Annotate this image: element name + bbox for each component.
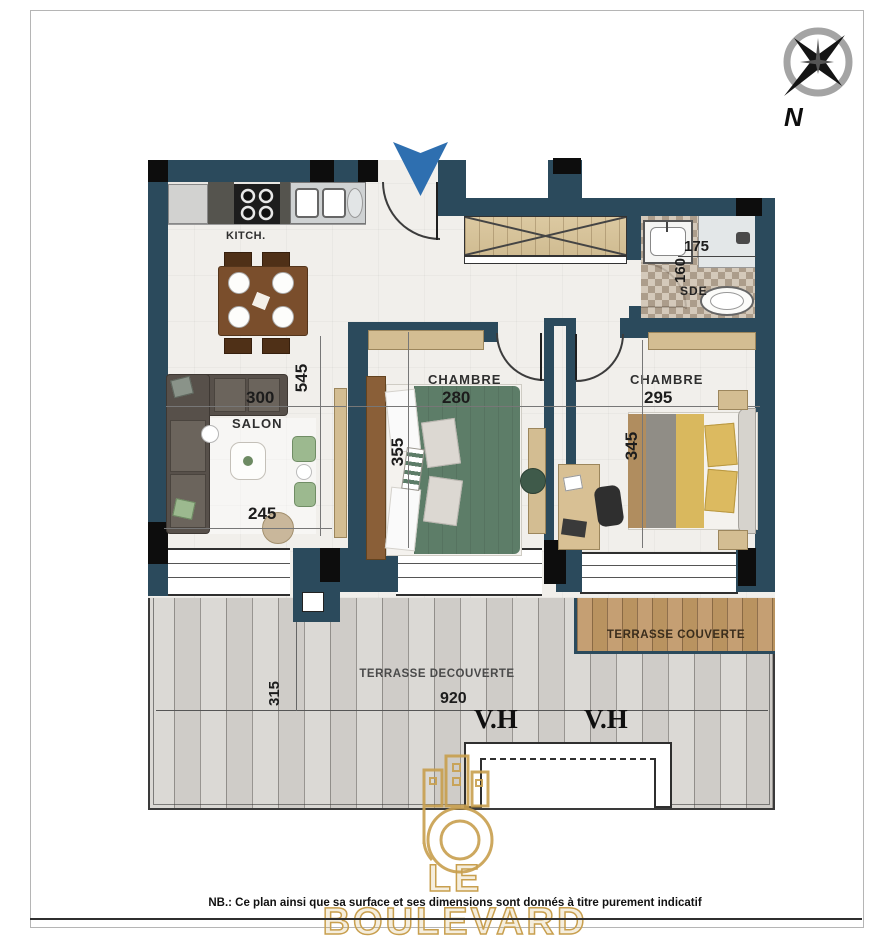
dim-line-545 bbox=[320, 336, 321, 536]
bedroom1-duvet-green bbox=[414, 386, 520, 554]
dining-chair bbox=[224, 338, 252, 354]
side-table-round bbox=[201, 425, 219, 443]
sink-basin-left bbox=[295, 188, 319, 218]
bedroom2-headboard bbox=[738, 408, 756, 534]
dim-line-345 bbox=[642, 340, 643, 548]
wall-top-kitchen bbox=[148, 160, 378, 182]
wall-stub-column-hole bbox=[302, 592, 324, 612]
pillow-gray bbox=[423, 476, 463, 526]
window-bedroom-2 bbox=[580, 552, 738, 594]
window-salon bbox=[164, 548, 290, 596]
dim-sde-depth: 160 bbox=[672, 258, 689, 283]
dim-salon-width: 300 bbox=[246, 388, 274, 408]
sofa-cushion bbox=[170, 420, 206, 472]
column-door-jamb bbox=[358, 160, 378, 182]
counter-dark-left bbox=[208, 182, 234, 224]
side-table-small bbox=[296, 464, 312, 480]
nightstand-bottom bbox=[718, 530, 748, 550]
dim-line-175 bbox=[678, 256, 756, 257]
stove-burners-icon bbox=[234, 184, 280, 224]
brand-logo-icon bbox=[388, 748, 528, 876]
pillow-yellow bbox=[704, 423, 738, 467]
exterior-notch bbox=[466, 150, 786, 198]
wall-bath-left-lower bbox=[629, 306, 641, 318]
dining-chair bbox=[262, 338, 290, 354]
plate bbox=[272, 272, 294, 294]
terrace-covered-label: TERRASSE COUVERTE bbox=[585, 629, 767, 641]
dim-bedroom2-width: 295 bbox=[644, 388, 672, 408]
wall-divider-cap bbox=[544, 318, 576, 326]
bed-blanket-yellow bbox=[676, 414, 704, 528]
kitchen-label: KITCH. bbox=[226, 230, 266, 242]
dim-bedroom1-depth: 355 bbox=[388, 438, 408, 466]
wall-top-hall-bath bbox=[462, 198, 775, 216]
column-hall-top bbox=[553, 158, 581, 174]
dim-sde-width: 175 bbox=[684, 238, 709, 255]
terrace-covered-deck bbox=[574, 592, 775, 654]
coffee-table-plant bbox=[243, 456, 253, 466]
throw-pillow bbox=[172, 498, 195, 520]
laptop bbox=[561, 518, 587, 537]
dim-line-280-295 bbox=[348, 406, 760, 407]
compass-north-label: N bbox=[784, 102, 804, 130]
column-bath-top bbox=[736, 198, 762, 216]
pouf-green bbox=[294, 482, 316, 507]
sink-drainboard bbox=[347, 188, 363, 218]
footer-rule bbox=[30, 918, 862, 920]
dim-line-355 bbox=[408, 332, 409, 548]
pillow-yellow bbox=[704, 469, 738, 513]
vh-label-right: V.H bbox=[584, 704, 628, 735]
stove bbox=[234, 184, 280, 224]
shower-head bbox=[736, 232, 750, 244]
salon-label: SALON bbox=[232, 416, 283, 431]
dim-line-245 bbox=[164, 528, 332, 529]
bedroom2-wardrobe bbox=[648, 332, 756, 350]
plate bbox=[272, 306, 294, 328]
hall-closet-front bbox=[464, 256, 627, 264]
terrace-open-label: TERRASSE DECOUVERTE bbox=[325, 668, 549, 680]
vh-label-left: V.H bbox=[474, 704, 518, 735]
bedroom1-headboard bbox=[366, 376, 386, 560]
desk-chair bbox=[593, 484, 624, 527]
pillow-gray bbox=[421, 418, 461, 468]
closet-cross-icon bbox=[465, 217, 626, 255]
vanity-faucet bbox=[666, 222, 668, 232]
bed-blanket-gray bbox=[646, 414, 676, 528]
dim-salon-front: 245 bbox=[248, 504, 276, 524]
wall-salon-bedroom1 bbox=[348, 322, 368, 560]
bedroom1-wardrobe bbox=[368, 330, 484, 350]
dim-bedroom1-width: 280 bbox=[442, 388, 470, 408]
compass-rose-icon: N bbox=[772, 12, 864, 130]
column-bottom-right bbox=[738, 548, 756, 586]
column-stub bbox=[320, 548, 340, 582]
counter-dark-mid bbox=[280, 182, 290, 224]
floor-plan: N TERRASSE COUVERTE TERRASSE DECOUVERTE … bbox=[0, 0, 880, 938]
dim-salon-depth: 545 bbox=[292, 364, 312, 392]
dim-bedroom2-depth: 345 bbox=[622, 432, 642, 460]
wall-bath-left-upper bbox=[627, 216, 641, 260]
pouf-green bbox=[292, 436, 316, 462]
vanity-basin bbox=[650, 227, 686, 256]
plan-disclaimer-note: NB.: Ce plan ainsi que sa surface et ses… bbox=[95, 897, 815, 909]
entrance-door-leaf bbox=[436, 182, 438, 240]
dim-terrace-920: 920 bbox=[440, 690, 467, 708]
hall-closet bbox=[464, 216, 627, 256]
dim-terrace-315: 315 bbox=[266, 681, 283, 706]
bedroom1-pouf bbox=[520, 468, 546, 494]
plate bbox=[228, 272, 250, 294]
bedroom1-door-leaf bbox=[540, 333, 542, 381]
toilet-bowl bbox=[710, 292, 744, 310]
tv-console bbox=[334, 388, 347, 538]
sde-label: SDE bbox=[680, 284, 708, 298]
bedroom2-door-leaf bbox=[575, 334, 577, 380]
column-top-mid bbox=[310, 160, 334, 182]
nightstand-top bbox=[718, 390, 748, 410]
fridge bbox=[168, 184, 208, 224]
dim-line-300 bbox=[166, 406, 346, 407]
bedroom1-label: CHAMBRE bbox=[428, 372, 501, 387]
sink-basin-right bbox=[322, 188, 346, 218]
plate bbox=[228, 306, 250, 328]
dim-line-920 bbox=[156, 710, 768, 711]
wall-right bbox=[755, 198, 775, 592]
column-top-left bbox=[148, 160, 168, 182]
